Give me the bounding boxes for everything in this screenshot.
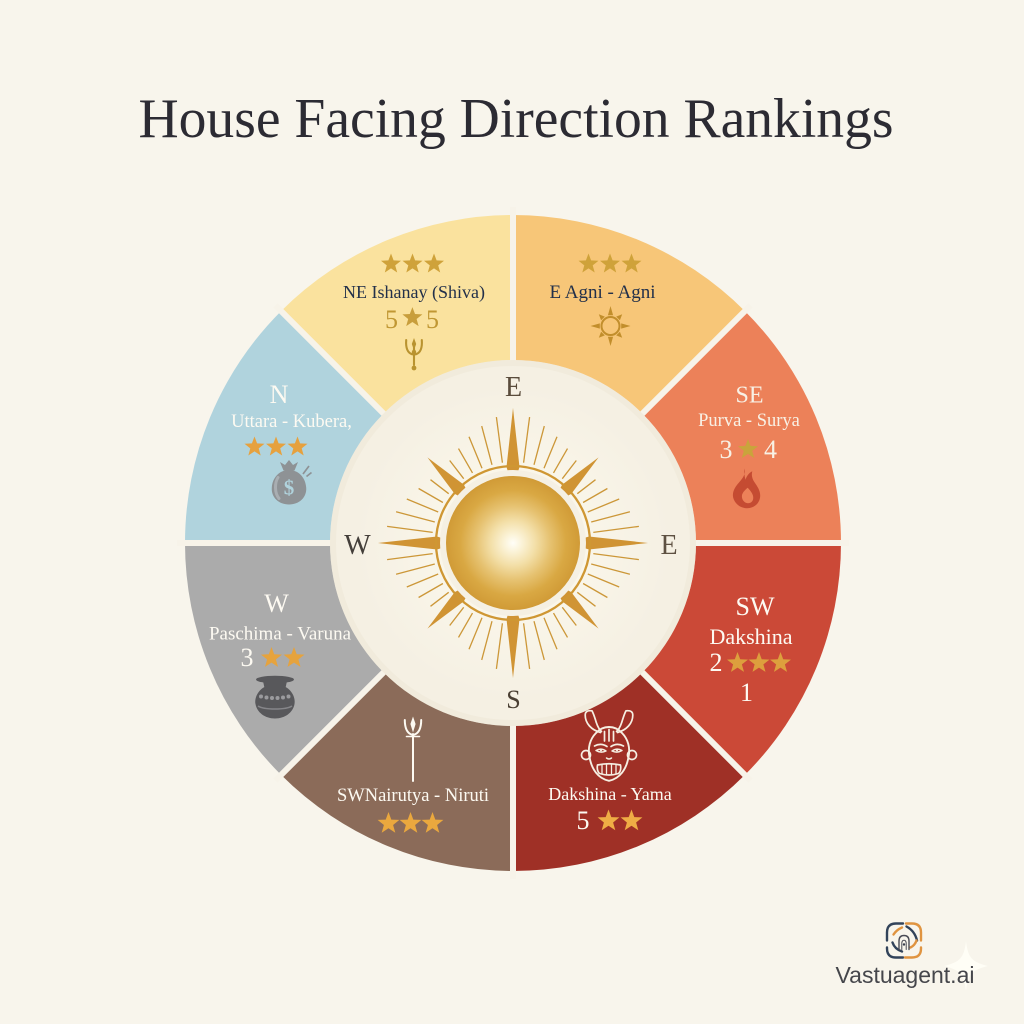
svg-text:W: W bbox=[344, 530, 371, 561]
svg-text:N: N bbox=[270, 380, 289, 409]
svg-text:Dakshina - Yama: Dakshina - Yama bbox=[548, 784, 672, 804]
svg-text:$: $ bbox=[284, 476, 295, 500]
svg-text:E: E bbox=[505, 372, 522, 403]
svg-text:Dakshina: Dakshina bbox=[709, 624, 792, 649]
svg-text:SWNairutya - Niruti: SWNairutya - Niruti bbox=[337, 786, 489, 806]
svg-text:W: W bbox=[264, 589, 289, 618]
svg-text:2: 2 bbox=[710, 648, 723, 677]
svg-text:Purva - Surya: Purva - Surya bbox=[698, 411, 800, 431]
svg-text:Paschima - Varuna: Paschima - Varuna bbox=[209, 624, 352, 645]
svg-text:E: E bbox=[660, 530, 677, 561]
svg-text:NE Ishanay (Shiva): NE Ishanay (Shiva) bbox=[343, 282, 485, 303]
svg-text:3: 3 bbox=[241, 643, 254, 672]
svg-text:3: 3 bbox=[720, 435, 733, 464]
svg-text:Uttara - Kubera,: Uttara - Kubera, bbox=[231, 412, 352, 432]
svg-text:S: S bbox=[506, 685, 520, 714]
svg-text:House Facing Direction Ranking: House Facing Direction Rankings bbox=[138, 88, 893, 150]
svg-text:E Agni - Agni: E Agni - Agni bbox=[549, 282, 655, 303]
svg-text:SE: SE bbox=[735, 383, 763, 409]
svg-text:5: 5 bbox=[385, 305, 398, 334]
svg-text:4: 4 bbox=[764, 435, 777, 464]
svg-text:5: 5 bbox=[577, 806, 590, 835]
svg-text:SW: SW bbox=[736, 592, 775, 621]
svg-text:1: 1 bbox=[740, 678, 753, 707]
svg-text:Vastuagent.ai: Vastuagent.ai bbox=[836, 962, 975, 988]
svg-text:5: 5 bbox=[426, 305, 439, 334]
